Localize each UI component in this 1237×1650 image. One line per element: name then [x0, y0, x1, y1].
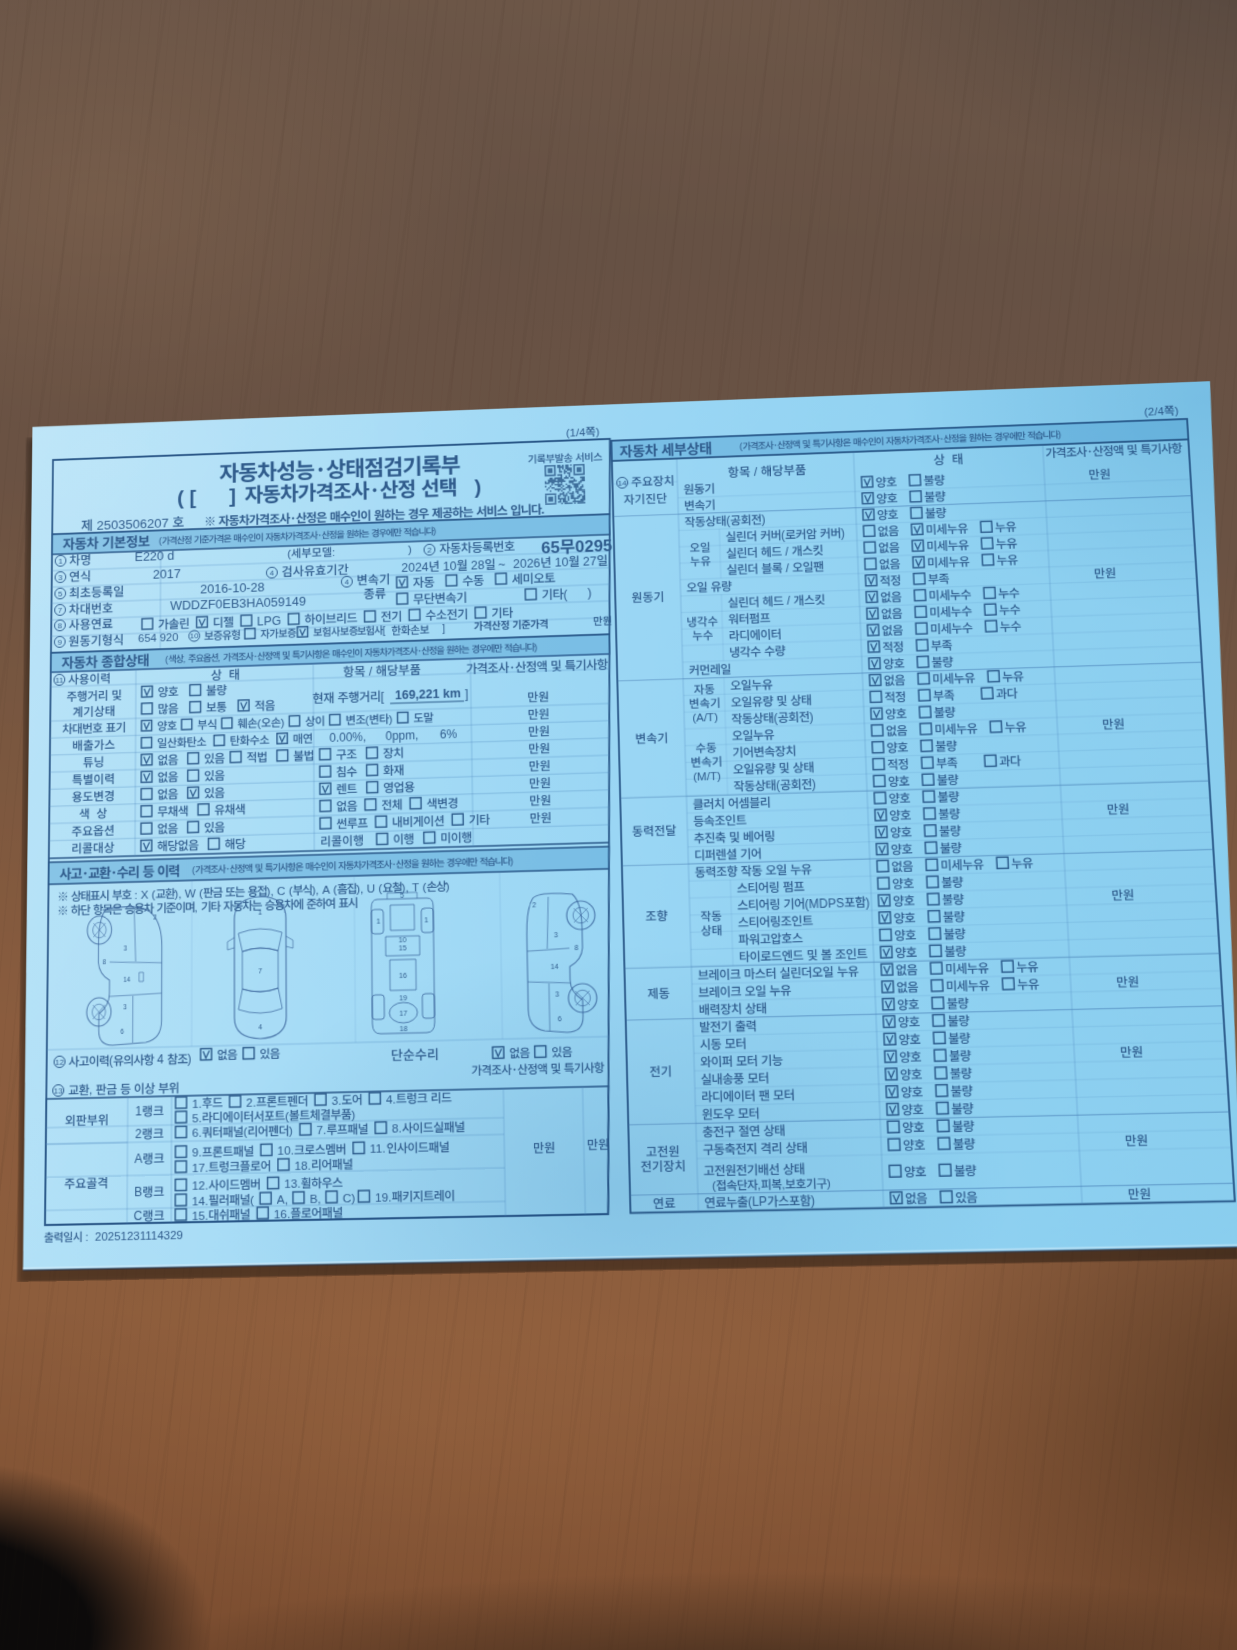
svg-text:,: ,: [183, 654, 186, 665]
svg-text:): ): [1174, 405, 1179, 418]
svg-text::: :: [85, 1232, 88, 1244]
svg-text:6: 6: [121, 1028, 125, 1036]
svg-text:d: d: [167, 548, 174, 563]
svg-text:(: (: [378, 883, 382, 896]
svg-text:14: 14: [618, 478, 627, 488]
svg-text:): ): [474, 476, 481, 499]
svg-text:2017: 2017: [153, 566, 181, 581]
svg-text:0.00%,: 0.00%,: [329, 732, 366, 746]
svg-text:12.: 12.: [192, 1180, 208, 1194]
svg-text:),: ),: [312, 884, 319, 897]
svg-text:6.: 6.: [192, 1127, 202, 1140]
svg-text:(: (: [199, 887, 203, 900]
svg-text:(MDPS: (MDPS: [805, 897, 845, 911]
svg-text:): ): [761, 514, 766, 527]
svg-text:[: [: [189, 487, 196, 510]
svg-text:(: (: [333, 884, 337, 897]
svg-text:28: 28: [471, 559, 485, 573]
svg-text:E220: E220: [135, 549, 165, 564]
svg-text:A,: A,: [277, 1193, 288, 1207]
svg-text:10: 10: [190, 631, 199, 641]
svg-text:1: 1: [376, 918, 380, 926]
svg-text:654: 654: [138, 633, 157, 646]
svg-text:): ): [351, 1109, 355, 1122]
svg-text:,: ,: [89, 1084, 92, 1097]
svg-text:2: 2: [532, 902, 536, 910]
svg-text:2: 2: [427, 545, 431, 554]
svg-text:15: 15: [399, 945, 407, 953]
svg-text:(1/4: (1/4: [566, 427, 586, 440]
svg-text:7: 7: [258, 968, 262, 976]
svg-text:27: 27: [583, 555, 597, 569]
svg-text:16: 16: [399, 972, 407, 980]
svg-text:LPG: LPG: [257, 615, 281, 628]
svg-text:): ): [389, 713, 393, 726]
svg-text:5: 5: [400, 892, 404, 900]
svg-text:C: C: [277, 885, 286, 898]
svg-text:(: (: [781, 530, 786, 543]
svg-text:,: ,: [781, 1179, 785, 1193]
svg-text:/: /: [785, 546, 790, 559]
svg-text:2: 2: [153, 914, 157, 922]
svg-text:19.: 19.: [375, 1191, 392, 1205]
svg-text:3.: 3.: [332, 1094, 342, 1107]
svg-text:(: (: [712, 1180, 717, 1194]
svg-text:9: 9: [58, 637, 62, 646]
svg-text:14: 14: [124, 976, 131, 984]
svg-text:,: ,: [218, 653, 221, 664]
svg-text:): ): [811, 1195, 816, 1209]
svg-text:): ): [510, 856, 513, 867]
svg-text:): ): [187, 1053, 191, 1066]
svg-text:(: (: [257, 718, 261, 731]
svg-text:),: ),: [174, 888, 181, 901]
svg-text:1: 1: [58, 556, 62, 565]
svg-text:10: 10: [399, 937, 407, 945]
svg-text:20251231114329: 20251231114329: [95, 1229, 183, 1244]
svg-text:]: ]: [465, 687, 469, 701]
svg-text:.: .: [541, 504, 545, 517]
svg-text:): ): [289, 1125, 293, 1138]
svg-text:): ): [812, 779, 817, 792]
svg-text:4.: 4.: [386, 1093, 396, 1107]
svg-text:km: km: [443, 687, 461, 701]
svg-text:C): C): [343, 1192, 356, 1206]
svg-text:,: ,: [194, 902, 197, 915]
svg-text:3: 3: [123, 1003, 127, 1011]
svg-text:11: 11: [55, 675, 63, 685]
svg-text:B,: B,: [310, 1193, 321, 1207]
svg-text:6: 6: [558, 1016, 562, 1024]
svg-text:): ): [534, 642, 537, 653]
svg-text:/: /: [787, 595, 792, 608]
svg-text:7.: 7.: [316, 1124, 326, 1138]
svg-text:(LP: (LP: [748, 1196, 768, 1210]
svg-text:17.: 17.: [192, 1162, 208, 1176]
svg-text:(: (: [285, 1110, 289, 1123]
svg-text:3: 3: [124, 945, 128, 953]
svg-text:(: (: [109, 1055, 113, 1068]
svg-text:2026: 2026: [513, 557, 541, 571]
svg-text:10: 10: [443, 560, 457, 574]
svg-text:7: 7: [58, 605, 62, 614]
svg-text:9.: 9.: [192, 1147, 202, 1161]
svg-text:3: 3: [58, 573, 62, 582]
svg-text:8: 8: [58, 621, 62, 630]
svg-text:18.: 18.: [294, 1159, 311, 1173]
svg-text:): ): [596, 426, 600, 438]
svg-text:W: W: [185, 888, 197, 901]
svg-text:4: 4: [258, 1024, 262, 1032]
svg-text:(: (: [177, 487, 184, 510]
svg-text:169,221: 169,221: [395, 687, 440, 702]
svg-text:,: ,: [757, 1179, 761, 1193]
svg-text:C: C: [134, 1210, 143, 1224]
svg-text:8.: 8.: [392, 1123, 402, 1137]
svg-text:): ): [587, 587, 592, 601]
svg-text:17: 17: [399, 1010, 407, 1018]
svg-text:15.: 15.: [192, 1209, 209, 1223]
svg-text:): ): [826, 1178, 830, 1192]
svg-text:6%: 6%: [440, 729, 457, 742]
svg-text:): ): [1058, 430, 1062, 441]
svg-text:/: /: [754, 465, 759, 479]
svg-text:(: (: [165, 654, 168, 665]
svg-text:X: X: [141, 889, 149, 902]
svg-text:14.: 14.: [192, 1195, 209, 1209]
svg-text:18: 18: [400, 1026, 408, 1034]
svg-text:0ppm,: 0ppm,: [385, 730, 418, 744]
svg-text:B: B: [134, 1187, 142, 1201]
svg-text:5: 5: [58, 589, 62, 598]
svg-text:2024: 2024: [401, 561, 429, 575]
svg-text:]: ]: [229, 485, 236, 508]
svg-text:): ): [408, 544, 412, 557]
svg-text:A: A: [134, 1153, 143, 1166]
svg-text:(: (: [159, 536, 162, 546]
svg-text:(: (: [776, 780, 781, 793]
svg-text:0295: 0295: [575, 537, 613, 556]
svg-text:(M/T): (M/T): [693, 770, 721, 784]
svg-text:[: [: [382, 626, 385, 638]
svg-text:(: (: [250, 1194, 254, 1207]
svg-text:3: 3: [554, 932, 558, 940]
svg-text:): ): [281, 717, 285, 730]
svg-text:(: (: [243, 1126, 247, 1139]
svg-text:(: (: [726, 515, 731, 528]
svg-text:1: 1: [135, 1106, 142, 1119]
svg-text:]: ]: [442, 624, 445, 636]
svg-text:): ): [809, 711, 814, 724]
svg-text:4: 4: [345, 577, 349, 586]
svg-text:(: (: [563, 588, 568, 602]
svg-text:(: (: [365, 714, 369, 727]
svg-text:11.: 11.: [370, 1143, 386, 1157]
svg-text:),: ),: [356, 883, 363, 896]
svg-text:3: 3: [555, 991, 559, 999]
svg-text:(: (: [287, 548, 291, 561]
svg-text:(: (: [289, 885, 293, 898]
svg-text:1: 1: [424, 917, 428, 925]
svg-text:(: (: [192, 865, 195, 876]
svg-text:4: 4: [270, 568, 274, 577]
svg-text:U: U: [367, 883, 376, 896]
svg-text:2016-10-28: 2016-10-28: [200, 580, 265, 597]
svg-text:(2/4: (2/4: [1144, 406, 1165, 419]
svg-text:): ): [446, 881, 450, 894]
svg-text:1.: 1.: [192, 1098, 202, 1111]
svg-text:[: [: [381, 690, 385, 704]
svg-text:10.: 10.: [277, 1145, 294, 1159]
svg-text:2: 2: [135, 1129, 142, 1142]
svg-text:(: (: [422, 881, 426, 894]
svg-text:8: 8: [103, 958, 107, 966]
svg-text:~: ~: [498, 558, 506, 572]
svg-text:2.: 2.: [246, 1096, 256, 1109]
svg-text:WDDZF0EB3HA059149: WDDZF0EB3HA059149: [170, 594, 306, 613]
svg-text:A: A: [322, 884, 331, 897]
svg-text:1: 1: [258, 909, 262, 917]
svg-text:): ): [433, 526, 436, 536]
svg-text:(: (: [773, 712, 778, 725]
svg-text:13: 13: [54, 1086, 63, 1096]
svg-text:): ): [865, 896, 870, 909]
svg-text:65: 65: [541, 539, 560, 557]
svg-text:8: 8: [574, 945, 578, 953]
svg-text:5.: 5.: [192, 1112, 202, 1125]
svg-text:16.: 16.: [274, 1208, 291, 1222]
svg-text::: :: [332, 547, 335, 560]
svg-text:(: (: [152, 889, 156, 902]
svg-text:10: 10: [555, 556, 569, 570]
svg-text:920: 920: [160, 632, 179, 645]
svg-text:4: 4: [157, 1054, 164, 1067]
svg-text:14: 14: [551, 963, 559, 971]
svg-text:(: (: [739, 442, 743, 452]
svg-text:/: /: [785, 563, 790, 576]
svg-text:(A/T): (A/T): [692, 711, 718, 725]
svg-text::: :: [134, 889, 137, 902]
svg-text:13.: 13.: [284, 1178, 301, 1192]
svg-text:): ): [841, 528, 846, 541]
svg-text:19: 19: [399, 995, 407, 1003]
svg-text:12: 12: [55, 1057, 64, 1067]
